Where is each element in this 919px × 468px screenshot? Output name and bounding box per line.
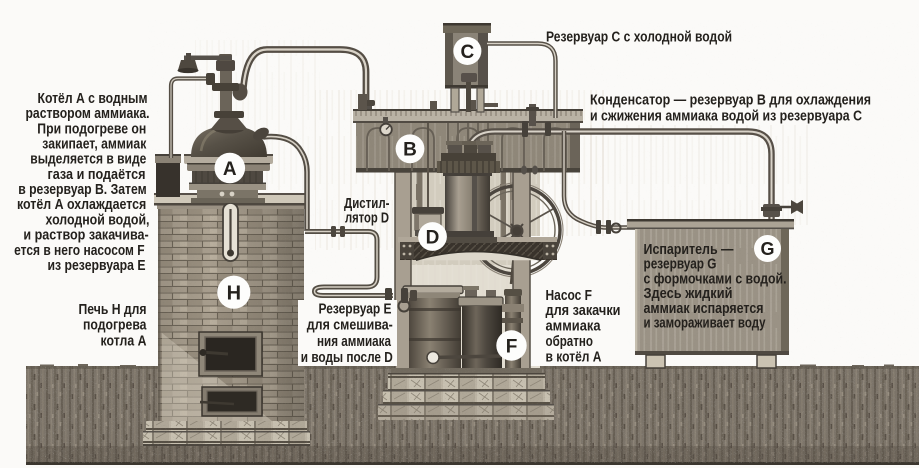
svg-text:Здесь жидкий: Здесь жидкий xyxy=(644,286,733,302)
svg-text:для закачки: для закачки xyxy=(546,303,621,319)
svg-text:Н: Н xyxy=(227,282,241,304)
svg-text:ется в него насосом F: ется в него насосом F xyxy=(14,243,145,259)
svg-text:Резервуар Е: Резервуар Е xyxy=(319,302,392,318)
svg-text:в котёл А: в котёл А xyxy=(546,349,602,365)
svg-text:аммиака: аммиака xyxy=(546,319,602,335)
svg-text:и воды после D: и воды после D xyxy=(301,350,393,366)
svg-text:Котёл А с водным: Котёл А с водным xyxy=(38,91,148,107)
svg-text:и сжижения аммиака водой из ре: и сжижения аммиака водой из резервуара С xyxy=(590,109,862,125)
svg-text:закипает, аммиак: закипает, аммиак xyxy=(42,137,147,153)
svg-text:Испаритель —: Испаритель — xyxy=(644,242,735,258)
svg-text:D: D xyxy=(426,227,440,248)
svg-text:А: А xyxy=(223,159,237,180)
svg-text:лятор D: лятор D xyxy=(345,211,389,227)
svg-text:подогрева: подогрева xyxy=(83,318,147,334)
svg-text:резервуар G: резервуар G xyxy=(644,257,717,273)
svg-text:F: F xyxy=(506,336,518,357)
svg-text:С: С xyxy=(461,42,475,63)
svg-text:Печь Н для: Печь Н для xyxy=(79,302,147,318)
svg-text:выделяется в виде: выделяется в виде xyxy=(30,152,146,168)
svg-text:В: В xyxy=(403,140,417,161)
svg-text:котёл А охлаждается: котёл А охлаждается xyxy=(17,197,146,213)
svg-text:Резервуар С с холодной водой: Резервуар С с холодной водой xyxy=(546,30,732,46)
svg-text:G: G xyxy=(760,239,774,259)
svg-text:и раствор закачива-: и раствор закачива- xyxy=(23,228,149,244)
svg-text:При подогреве он: При подогреве он xyxy=(37,121,146,137)
svg-text:в резервуар В. Затем: в резервуар В. Затем xyxy=(18,182,147,198)
svg-text:холодной водой,: холодной водой, xyxy=(46,212,150,228)
svg-text:раствором аммиака.: раствором аммиака. xyxy=(26,106,150,122)
svg-text:котла А: котла А xyxy=(101,334,147,350)
svg-text:с формочками с водой.: с формочками с водой. xyxy=(644,271,787,287)
svg-text:для смешива-: для смешива- xyxy=(307,318,393,334)
svg-text:газа и подаётся: газа и подаётся xyxy=(48,167,146,183)
svg-text:из резервуара Е: из резервуара Е xyxy=(48,258,146,274)
svg-text:ния аммиака: ния аммиака xyxy=(317,334,392,350)
svg-text:Конденсатор — резервуар В для: Конденсатор — резервуар В для охлаждения xyxy=(590,93,871,109)
svg-text:аммиак испаряется: аммиак испаряется xyxy=(644,301,764,317)
svg-text:обратно: обратно xyxy=(546,334,594,350)
svg-text:Насос F: Насос F xyxy=(546,288,593,304)
svg-text:и замораживает воду: и замораживает воду xyxy=(644,316,766,332)
